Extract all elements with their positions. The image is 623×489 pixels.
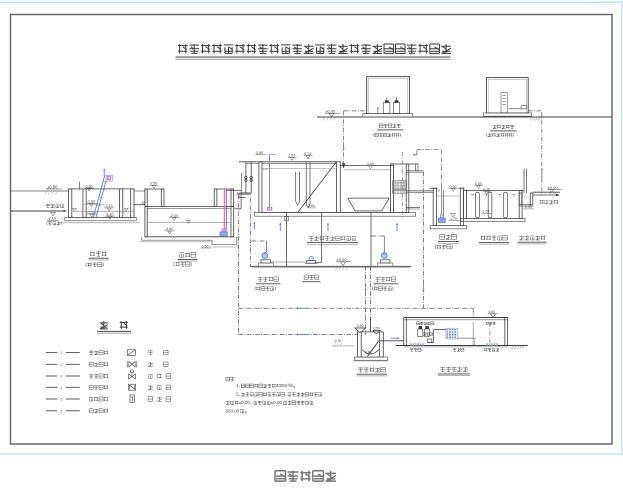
svg-text:±0.00: ±0.00	[325, 108, 336, 113]
svg-text:-1.70: -1.70	[481, 210, 489, 214]
svg-text:-1.90: -1.90	[87, 200, 95, 204]
svg-text:4: 4	[61, 386, 63, 390]
svg-text:-1.00: -1.00	[366, 162, 374, 166]
svg-text:6: 6	[61, 409, 63, 413]
svg-text:-1.70: -1.70	[449, 217, 457, 221]
svg-text:2: 2	[61, 363, 63, 367]
svg-text:0.10: 0.10	[304, 152, 311, 156]
svg-text:0.50: 0.50	[450, 185, 457, 189]
svg-text:-2.10: -2.10	[48, 217, 56, 221]
svg-text:5: 5	[61, 398, 63, 402]
svg-text:3.50: 3.50	[202, 244, 209, 248]
svg-text:400m³/d: 400m³/d	[276, 383, 293, 388]
svg-text:4.00: 4.00	[488, 310, 495, 314]
svg-text:-3.10: -3.10	[105, 212, 113, 216]
svg-text:-2.00: -2.00	[170, 214, 178, 218]
svg-text:±0.00: ±0.00	[271, 400, 283, 405]
svg-text:1.60: 1.60	[365, 350, 372, 354]
svg-text:2.50: 2.50	[288, 154, 295, 158]
svg-text:0.50: 0.50	[86, 184, 93, 188]
svg-text:0.50: 0.50	[475, 182, 482, 186]
svg-text:-0.90: -0.90	[524, 205, 532, 209]
svg-text:503.00: 503.00	[226, 408, 240, 413]
svg-text:0.10: 0.10	[262, 167, 268, 171]
svg-text:-0.30: -0.30	[334, 339, 341, 343]
svg-text:2.50: 2.50	[256, 151, 263, 155]
svg-text:-3.00: -3.00	[165, 227, 173, 231]
svg-text:±0.00: ±0.00	[337, 257, 348, 262]
svg-text:0.10: 0.10	[483, 187, 490, 191]
svg-text:0.50: 0.50	[150, 182, 157, 186]
svg-text:±0.00: ±0.00	[548, 185, 559, 190]
svg-text:±0.00: ±0.00	[47, 184, 58, 189]
svg-text:1: 1	[61, 351, 63, 355]
svg-text:3.94: 3.94	[308, 204, 315, 208]
svg-text:0.50: 0.50	[357, 324, 364, 328]
svg-text:3: 3	[61, 375, 63, 379]
svg-text::: :	[235, 377, 236, 382]
svg-text:-2.10: -2.10	[105, 204, 113, 208]
svg-text:±0.00: ±0.00	[239, 400, 251, 405]
